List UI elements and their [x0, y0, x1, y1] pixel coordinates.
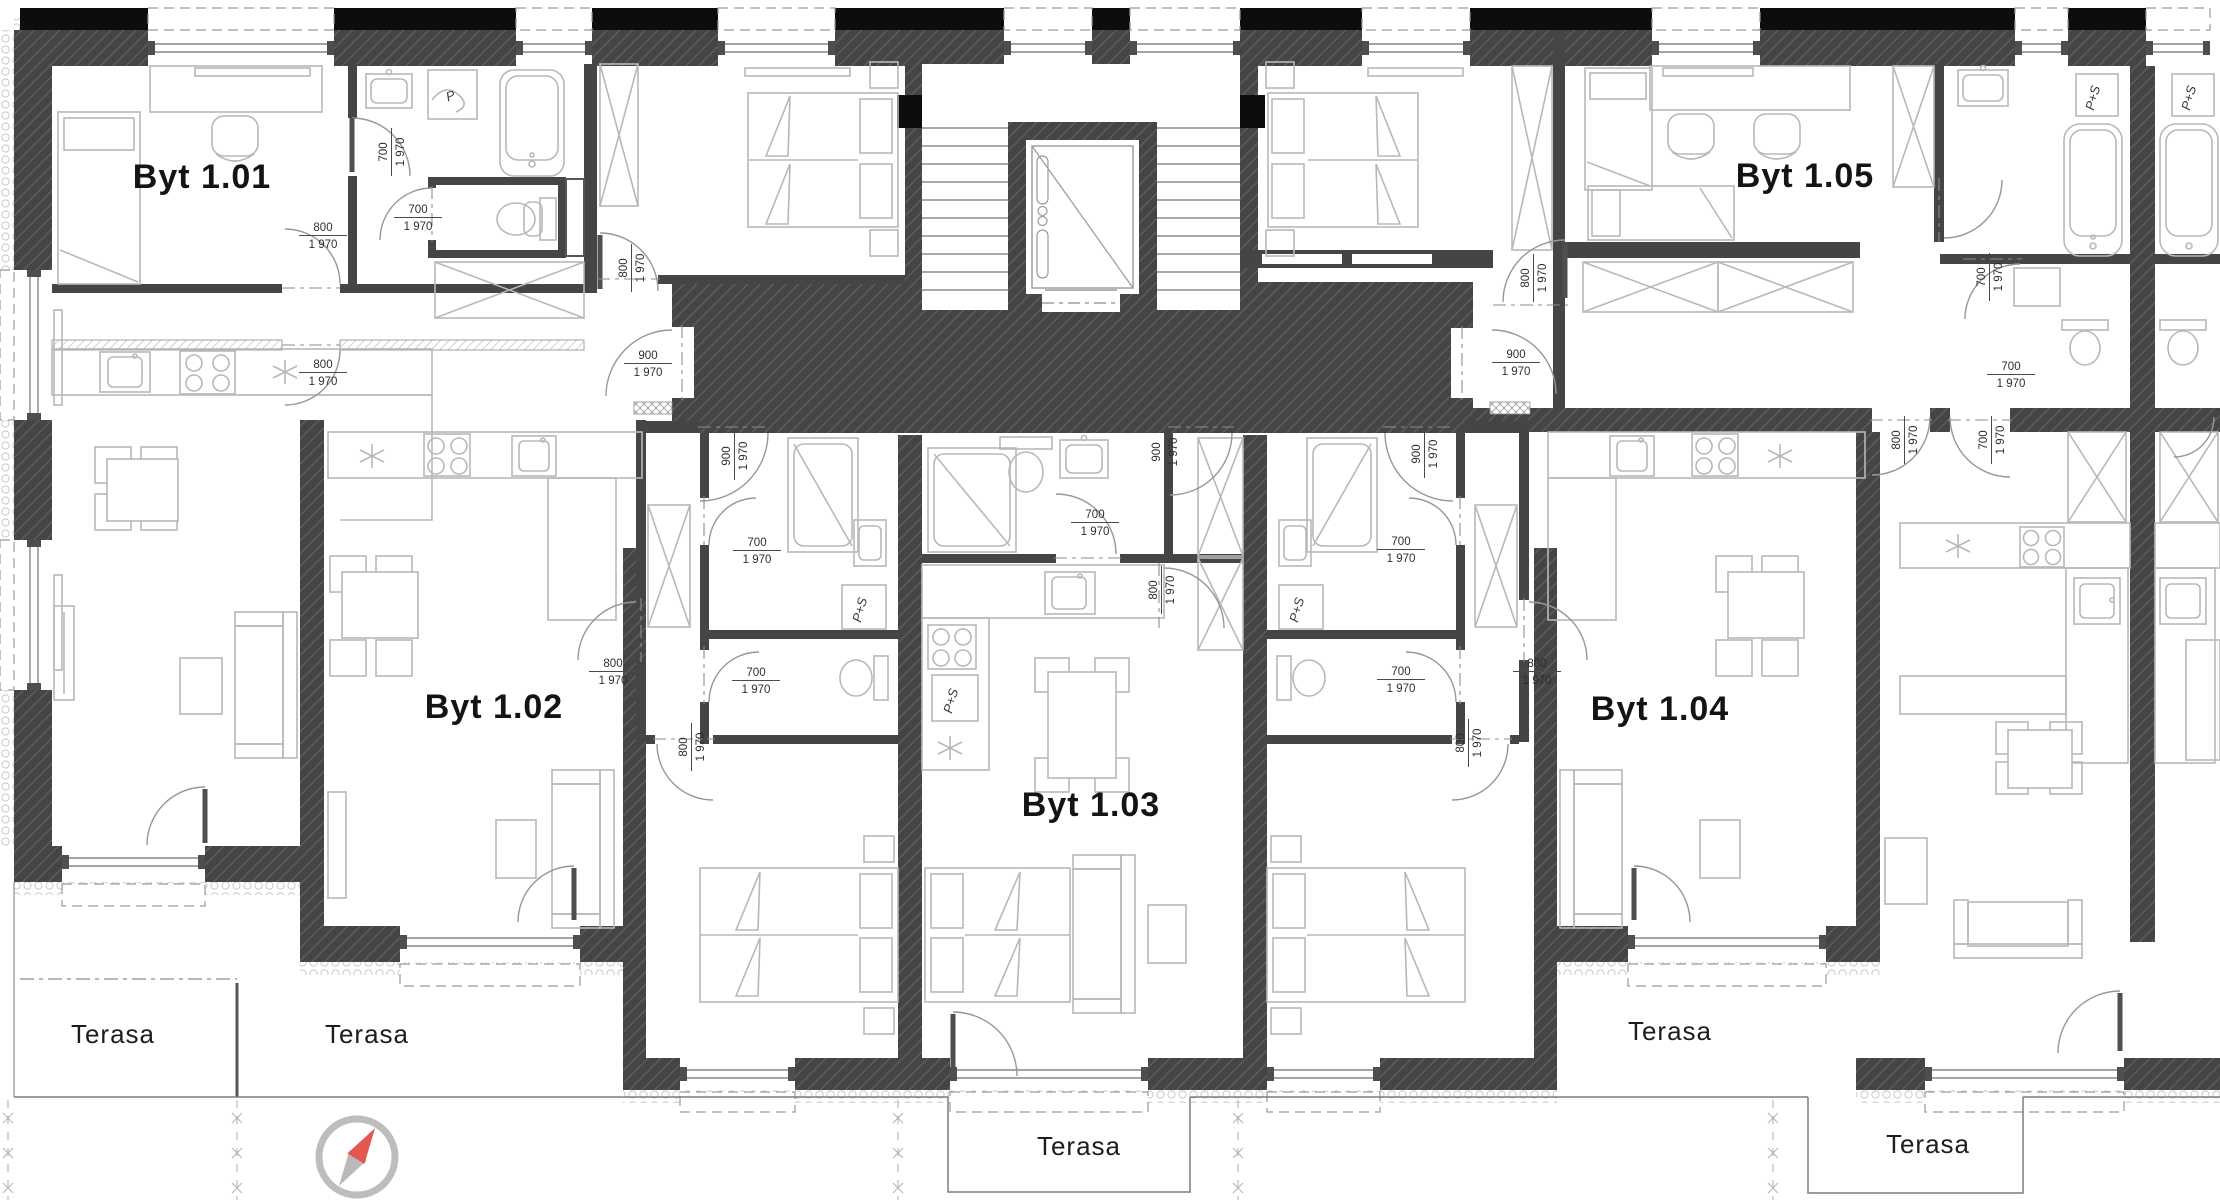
french-window — [1628, 926, 1826, 986]
door-width-value: 700 — [1978, 430, 1990, 449]
door-height-value: 1 970 — [1428, 440, 1440, 469]
terrace-label: Terasa — [1628, 1016, 1712, 1046]
window — [2146, 8, 2210, 66]
window — [718, 8, 835, 66]
door-width-value: 800 — [1148, 580, 1160, 599]
door-height-value: 1 970 — [1502, 366, 1531, 378]
window — [1652, 8, 1760, 66]
apartment-label-1.02: Byt 1.02 — [425, 688, 563, 726]
apartment-label-1.05: Byt 1.05 — [1736, 157, 1874, 195]
door-height-value: 1 970 — [1081, 526, 1110, 538]
door-width-value: 900 — [1411, 444, 1423, 463]
door-width-value: 800 — [603, 658, 622, 670]
window — [1004, 8, 1092, 66]
door-height-value: 1 970 — [738, 442, 750, 471]
door-width-value: 700 — [378, 142, 390, 161]
door-width-value: 800 — [618, 258, 630, 277]
dining-table — [1035, 658, 1129, 792]
door-height-value: 1 970 — [742, 684, 771, 696]
door-width-value: 700 — [1976, 267, 1988, 286]
door-height-value: 1 970 — [1537, 264, 1549, 293]
door-width-value: 800 — [313, 359, 332, 371]
door-width-value: 800 — [1455, 733, 1467, 752]
dining-table — [95, 447, 178, 530]
door-height-value: 1 970 — [1387, 683, 1416, 695]
door-width-value: 700 — [1391, 666, 1410, 678]
door-height-value: 1 970 — [743, 554, 772, 566]
door-height-value: 1 970 — [635, 254, 647, 283]
window — [516, 8, 592, 66]
elevator — [1008, 122, 1157, 312]
french-window — [62, 846, 205, 906]
apartment-label-1.01: Byt 1.01 — [133, 158, 271, 196]
door-height-value: 1 970 — [1997, 378, 2026, 390]
staircase-hall — [897, 64, 1265, 312]
door-width-value: 900 — [638, 350, 657, 362]
floor-plan-page: Byt 1.01Byt 1.02Byt 1.03Byt 1.04Byt 1.05… — [0, 0, 2220, 1200]
door-height-value: 1 970 — [395, 138, 407, 167]
door-height-value: 1 970 — [1993, 263, 2005, 292]
window — [680, 1058, 795, 1112]
door-height-value: 1 970 — [1387, 553, 1416, 565]
door-width-value: 700 — [1085, 509, 1104, 521]
door-height-value: 1 970 — [1165, 576, 1177, 605]
door-width-value: 800 — [1527, 658, 1546, 670]
french-window — [400, 926, 580, 986]
terrace-label: Terasa — [71, 1019, 155, 1049]
window — [1362, 8, 1470, 66]
door-width-value: 800 — [1520, 268, 1532, 287]
door-width-value: 800 — [678, 737, 690, 756]
dining-table — [1996, 722, 2082, 794]
french-window — [950, 1058, 1148, 1112]
door-width-value: 900 — [1151, 442, 1163, 461]
apartment-label-1.04: Byt 1.04 — [1591, 690, 1729, 728]
door-height-value: 1 970 — [1472, 729, 1484, 758]
door-height-value: 1 970 — [309, 239, 338, 251]
door-height-value: 1 970 — [1168, 438, 1180, 467]
door-height-value: 1 970 — [634, 367, 663, 379]
door-height-value: 1 970 — [695, 733, 707, 762]
door-height-value: 1 970 — [599, 675, 628, 687]
window — [148, 8, 334, 66]
door-height-value: 1 970 — [1995, 426, 2007, 455]
terrace-label: Terasa — [325, 1019, 409, 1049]
terrace-label: Terasa — [1037, 1131, 1121, 1161]
door-width-value: 700 — [1391, 536, 1410, 548]
window — [0, 270, 52, 420]
door-width-value: 700 — [2001, 361, 2020, 373]
door-width-value: 700 — [747, 537, 766, 549]
window — [1267, 1058, 1380, 1112]
door-height-value: 1 970 — [309, 376, 338, 388]
stair-column — [1240, 95, 1265, 128]
door-width-value: 800 — [1891, 430, 1903, 449]
door-height-value: 1 970 — [1908, 426, 1920, 455]
door-width-value: 700 — [746, 667, 765, 679]
terrace-label: Terasa — [1886, 1129, 1970, 1159]
apartment-label-1.03: Byt 1.03 — [1022, 786, 1160, 824]
door-height-value: 1 970 — [1523, 675, 1552, 687]
door-width-value: 900 — [721, 446, 733, 465]
door-width-value: 900 — [1506, 349, 1525, 361]
window — [0, 540, 52, 690]
window — [1130, 8, 1240, 66]
door-width-value: 700 — [408, 204, 427, 216]
stair-column — [897, 95, 922, 128]
window — [2015, 8, 2068, 66]
floor-plan-canvas: Byt 1.01Byt 1.02Byt 1.03Byt 1.04Byt 1.05… — [0, 0, 2220, 1200]
door-width-value: 800 — [313, 222, 332, 234]
french-window — [1925, 1058, 2124, 1112]
door-height-value: 1 970 — [404, 221, 433, 233]
